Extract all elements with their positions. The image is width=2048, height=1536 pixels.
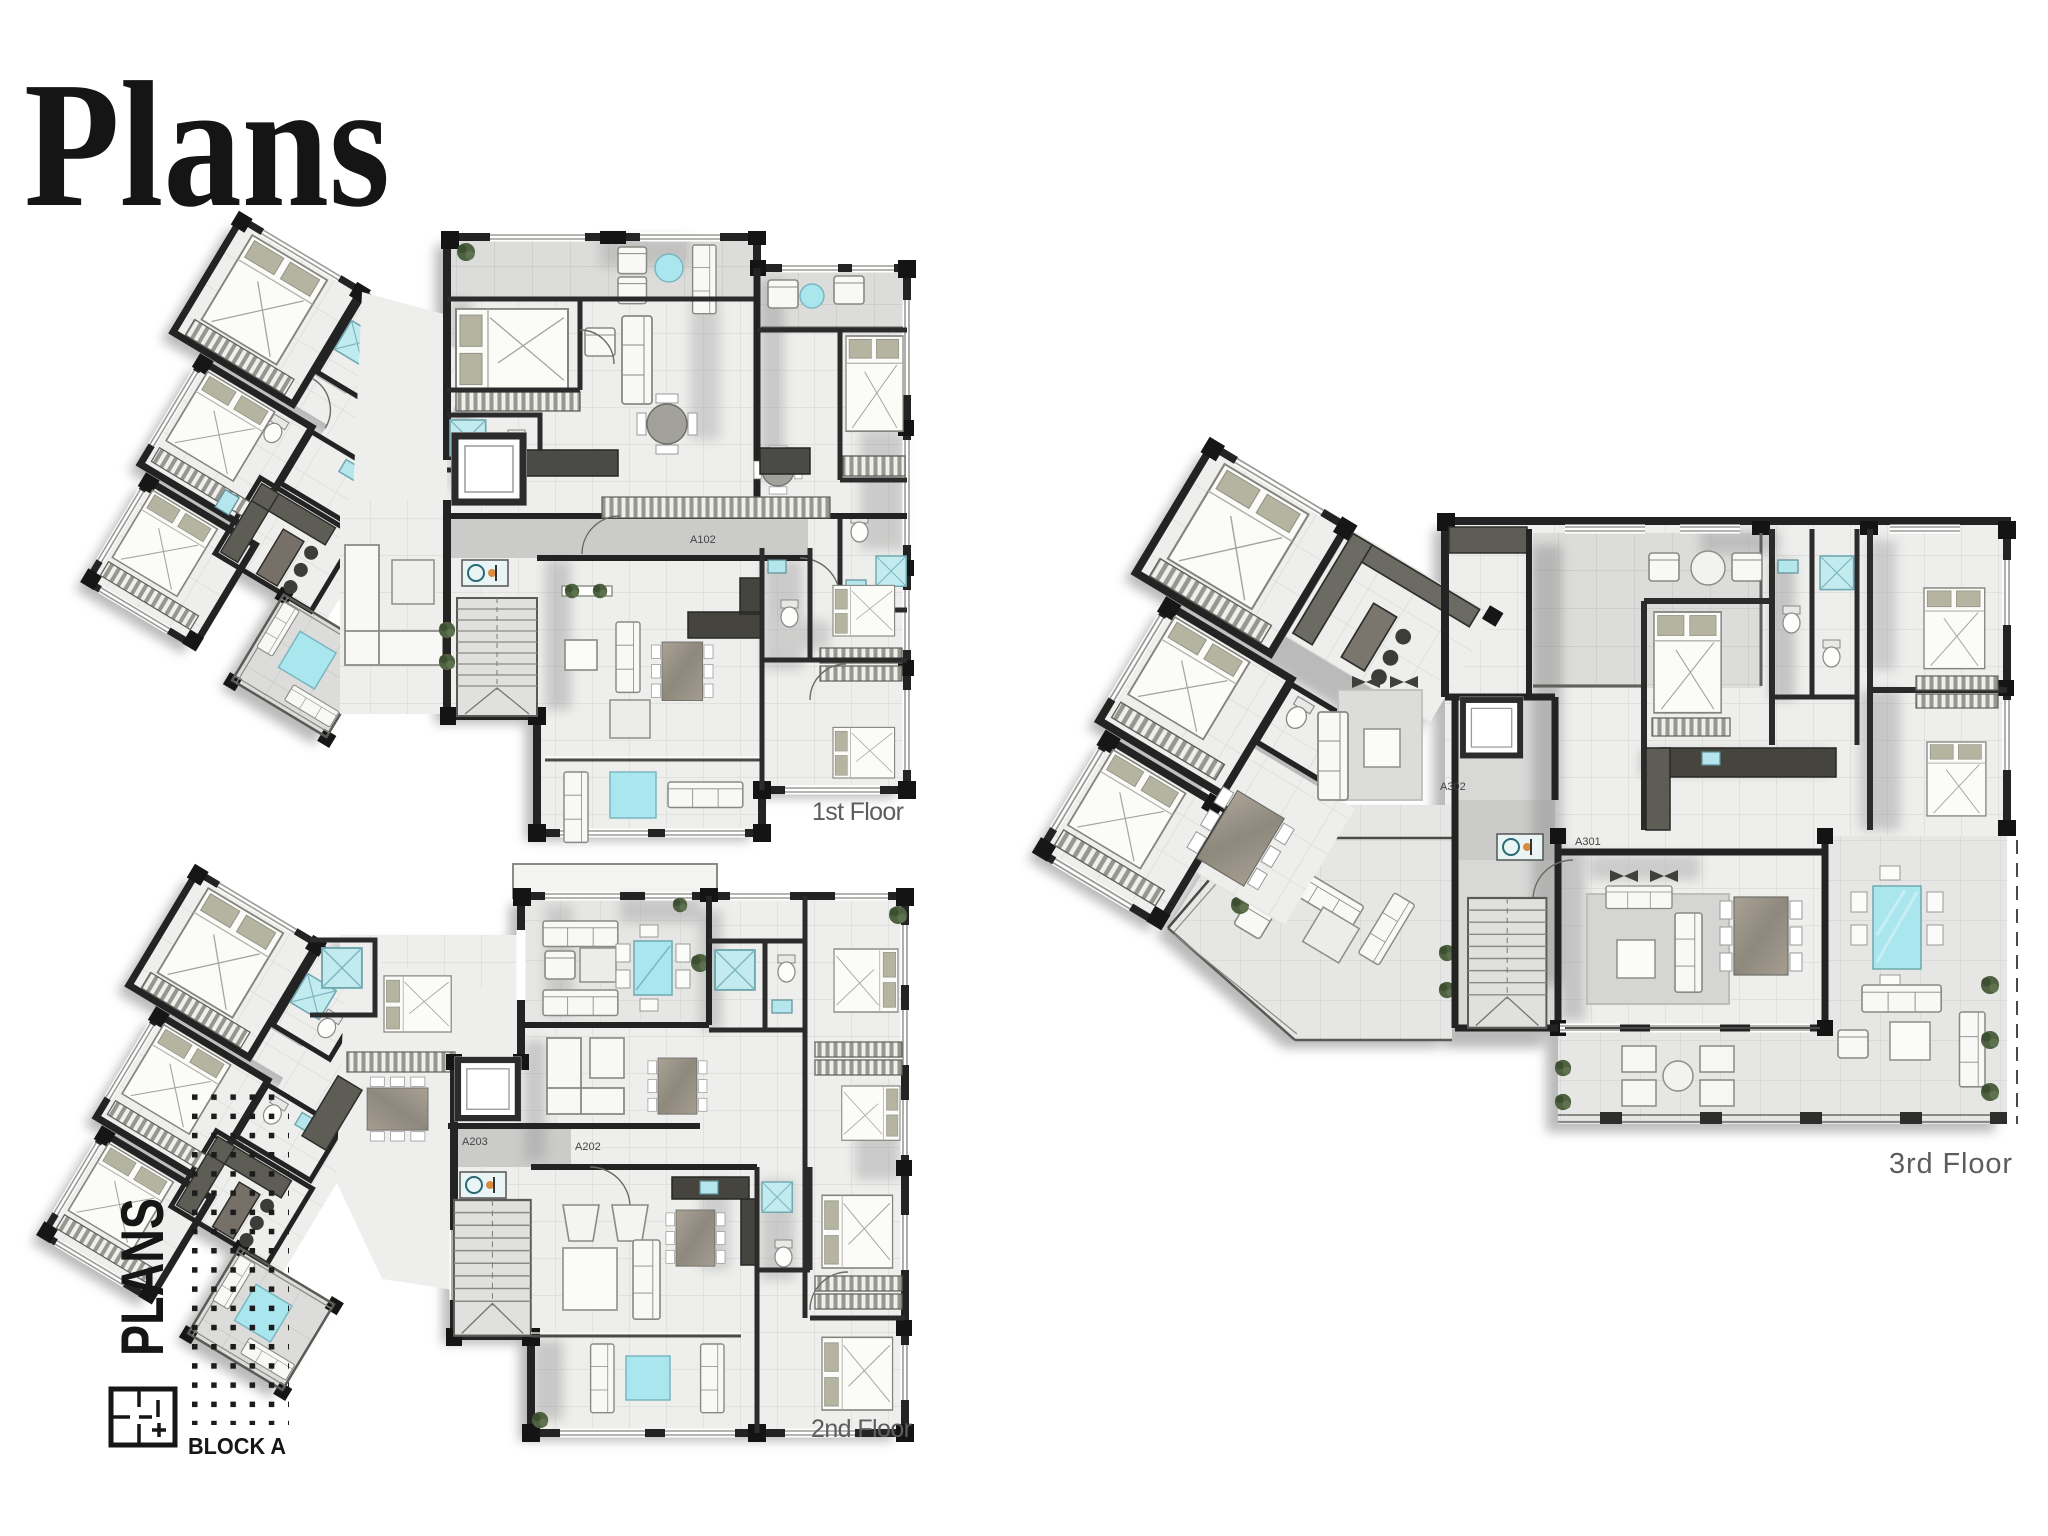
svg-text:A102: A102 — [690, 534, 716, 546]
svg-text:BLOCK A: BLOCK A — [188, 1433, 286, 1459]
svg-text:A203: A203 — [462, 1136, 488, 1148]
svg-text:3rd Floor: 3rd Floor — [1889, 1148, 2012, 1180]
svg-text:A302: A302 — [1440, 781, 1466, 793]
svg-text:1st Floor: 1st Floor — [812, 798, 904, 826]
svg-text:Plans: Plans — [24, 45, 390, 244]
svg-text:A301: A301 — [1575, 836, 1601, 848]
svg-text:A202: A202 — [575, 1141, 601, 1153]
svg-text:PLANS: PLANS — [109, 1198, 176, 1356]
svg-text:2nd Floor: 2nd Floor — [811, 1415, 912, 1443]
